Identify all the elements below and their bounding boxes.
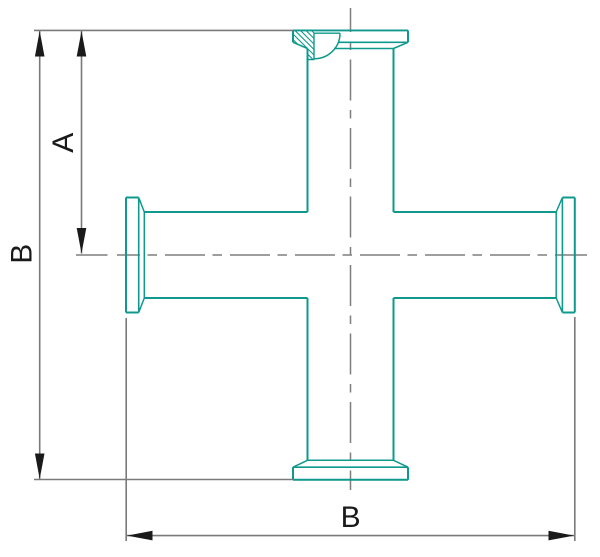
svg-text:B: B [6, 244, 39, 264]
svg-text:B: B [341, 501, 361, 534]
svg-text:A: A [47, 133, 80, 153]
